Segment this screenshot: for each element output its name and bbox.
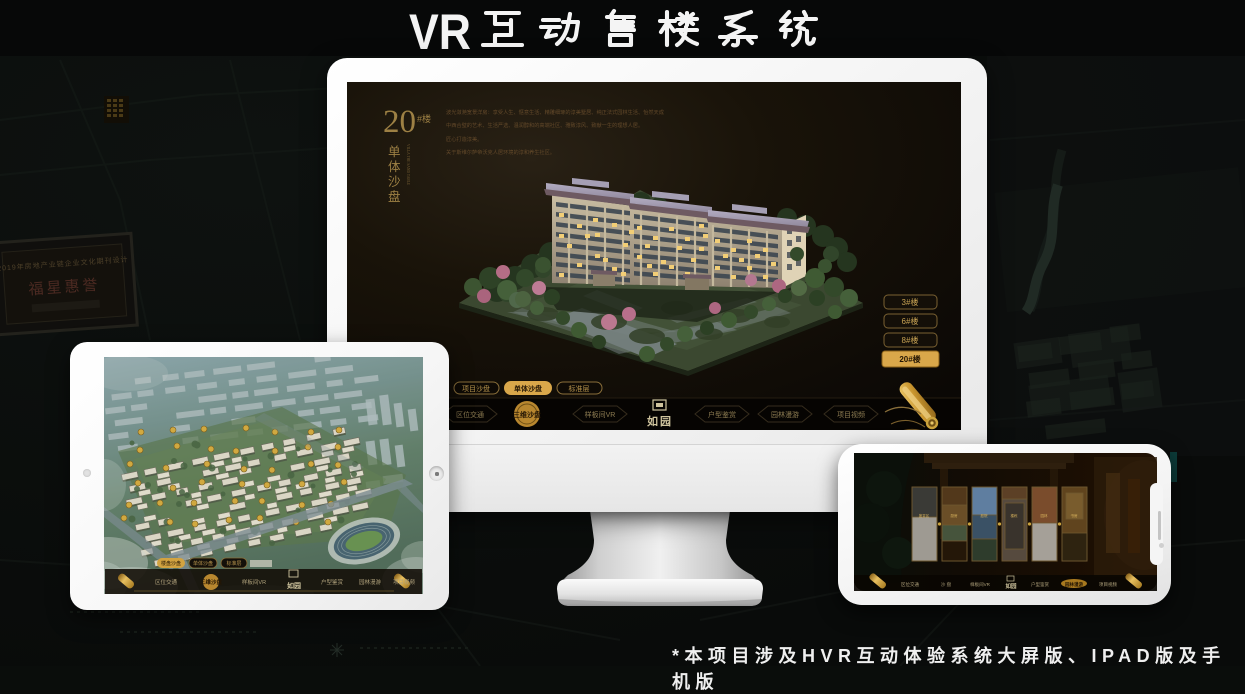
svg-text:标准层: 标准层 [226, 560, 241, 567]
svg-text:三维沙盘: 三维沙盘 [200, 578, 223, 586]
svg-text:园林漫游: 园林漫游 [359, 578, 382, 586]
svg-text:如园: 如园 [287, 581, 301, 590]
svg-text:项目沙盘: 项目沙盘 [462, 384, 490, 393]
svg-text:VILLA THE SAND TABLE: VILLA THE SAND TABLE [406, 144, 410, 186]
svg-text:户型鉴赏: 户型鉴赏 [321, 578, 344, 586]
svg-text:体: 体 [388, 160, 401, 174]
svg-text:厨房: 厨房 [951, 513, 959, 518]
svg-text:项目视频: 项目视频 [393, 578, 416, 586]
svg-text:盘: 盘 [388, 189, 401, 204]
svg-text:波光潋滟宽景洋房：享受人生、惬意生活、精雕细琢的淳美墅居、纯: 波光潋滟宽景洋房：享受人生、惬意生活、精雕细琢的淳美墅居、纯正法式园林生活、怡然… [446, 108, 664, 116]
svg-text:庭院: 庭院 [981, 513, 989, 518]
svg-text:户型鉴赏: 户型鉴赏 [1031, 581, 1049, 588]
svg-text:样板间VR: 样板间VR [970, 581, 991, 588]
svg-text:#楼: #楼 [417, 113, 431, 124]
svg-text:沙 盘: 沙 盘 [941, 581, 952, 587]
svg-text:8#楼: 8#楼 [902, 335, 919, 345]
svg-text:中西合璧的艺术、生活严选、温润醇和的高端社区、雅致淳风、致献: 中西合璧的艺术、生活严选、温润醇和的高端社区、雅致淳风、致献一生的理想人居。 [446, 121, 643, 129]
svg-text:VR: VR [409, 4, 471, 58]
svg-text:匠心打造淳美。: 匠心打造淳美。 [446, 135, 482, 143]
svg-text:区位交通: 区位交通 [901, 581, 919, 588]
svg-text:样板间VR: 样板间VR [242, 578, 266, 586]
svg-text:书房: 书房 [1071, 513, 1079, 518]
svg-text:单体沙盘: 单体沙盘 [193, 560, 213, 567]
svg-text:园林漫游: 园林漫游 [771, 410, 799, 419]
svg-text:关于斯维尔萨帝沃克人居环境的淳和养生社区。: 关于斯维尔萨帝沃克人居环境的淳和养生社区。 [446, 148, 555, 156]
svg-text:20: 20 [383, 104, 416, 140]
svg-text:楼栋: 楼栋 [1011, 513, 1019, 518]
svg-text:单: 单 [388, 145, 401, 159]
svg-text:区位交通: 区位交通 [155, 578, 178, 586]
svg-text:三维沙盘: 三维沙盘 [513, 410, 541, 419]
svg-text:样板间VR: 样板间VR [585, 410, 616, 419]
svg-text:3#楼: 3#楼 [902, 297, 919, 307]
svg-text:鉴赏区: 鉴赏区 [919, 513, 930, 518]
svg-text:如园: 如园 [647, 414, 673, 428]
svg-text:沙: 沙 [388, 175, 401, 189]
svg-text:标准层: 标准层 [569, 384, 590, 393]
svg-text:楼盘沙盘: 楼盘沙盘 [161, 560, 181, 567]
svg-text:项目视频: 项目视频 [1099, 581, 1117, 588]
svg-text:园林漫游: 园林漫游 [1065, 581, 1083, 588]
svg-text:20#楼: 20#楼 [899, 354, 920, 364]
svg-text:如园: 如园 [1005, 582, 1017, 590]
svg-text:单体沙盘: 单体沙盘 [514, 384, 542, 393]
svg-text:项目视频: 项目视频 [837, 410, 865, 419]
svg-text:6#楼: 6#楼 [902, 316, 919, 326]
svg-text:园林: 园林 [1041, 513, 1049, 518]
svg-text:区位交通: 区位交通 [456, 410, 484, 419]
svg-text:户型鉴赏: 户型鉴赏 [708, 410, 736, 419]
